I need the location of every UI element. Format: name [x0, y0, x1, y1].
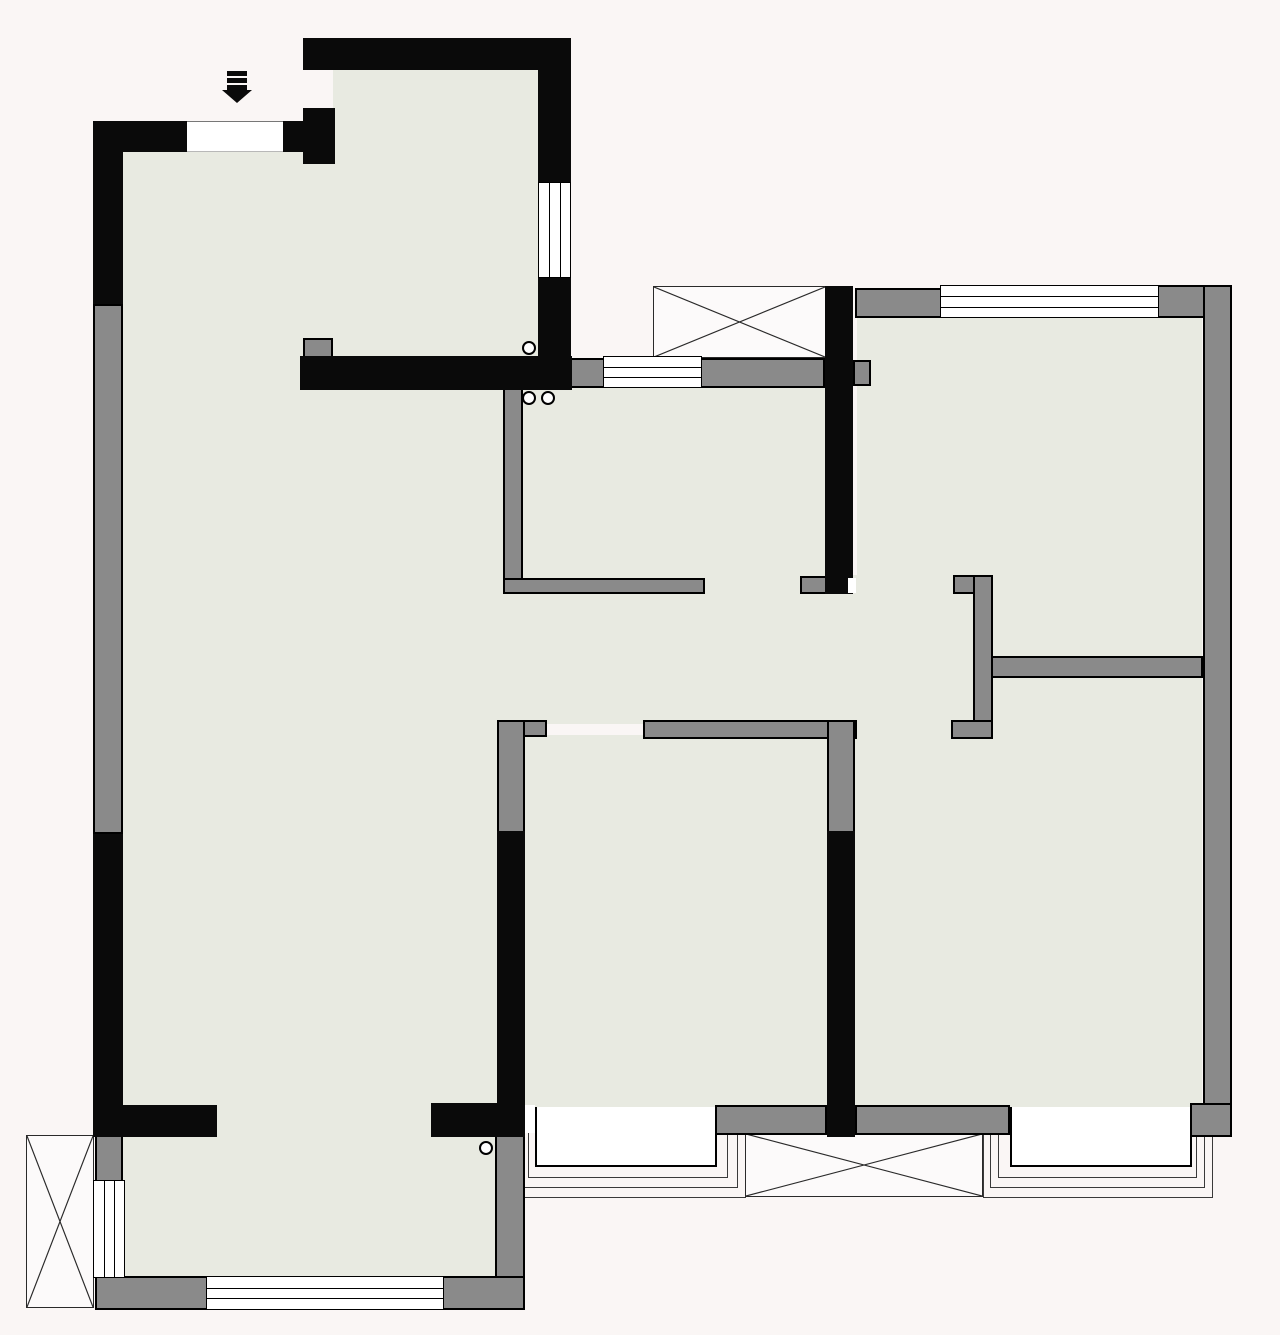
kitchen-top-wall-gray: [700, 358, 825, 388]
sunroom-west-window-pane-line: [114, 1181, 115, 1277]
sunroom-south-window-pane-line: [207, 1288, 443, 1289]
sunroom-floor: [123, 1133, 497, 1280]
room-divider-horizontal: [991, 656, 1203, 678]
sunroom-passage-floor: [215, 1103, 433, 1137]
bedroom-se-bottom-gray: [855, 1105, 1010, 1135]
bedroom-south-west-wall-black: [497, 831, 525, 1107]
entry-hall-east-window-pane-line: [549, 183, 550, 277]
sunroom-south-window: [206, 1276, 444, 1310]
room-divider-vertical-gray: [973, 575, 993, 739]
kitchen-west-wall-gray: [503, 386, 523, 592]
kitchen-window-jamb-left: [568, 358, 605, 388]
entry-hall-top-wall-black: [303, 38, 571, 70]
southeast-corner-gray: [1190, 1103, 1232, 1137]
drain-symbol-kitchen-2: [541, 391, 555, 405]
entry-hall-east-window-pane-line: [560, 183, 561, 277]
bedroom-southeast-floor: [855, 675, 1202, 1107]
flue-shaft-crossbox-top: [653, 286, 826, 358]
ac-platform-crossbox-left: [26, 1135, 94, 1308]
bedroom-south-west-gray: [497, 720, 525, 833]
kitchen-floor: [521, 386, 827, 582]
kitchen-bedroom-divider-black: [825, 286, 853, 594]
door-leaf-slit-south: [525, 1105, 535, 1133]
entry-wall-left-black: [93, 121, 189, 152]
left-wall-lower-black: [93, 834, 123, 1137]
right-outer-wall-gray: [1203, 285, 1232, 1137]
living-room-floor: [123, 150, 510, 1107]
bedroom-south-bottom-gray: [715, 1105, 827, 1135]
drain-symbol-kitchen-1: [522, 391, 536, 405]
kitchen-north-window-pane-line: [604, 367, 701, 368]
ac-platform-crossbox-bottom: [745, 1133, 983, 1197]
bedroom-north-top-wall-gray: [855, 288, 942, 318]
kitchen-door-cap-gray: [800, 576, 827, 594]
sunroom-east-wall-gray: [495, 1133, 525, 1278]
kitchen-north-window-pane-line: [604, 377, 701, 378]
bedroom-north-window: [940, 285, 1159, 318]
bedroom-se-bay-window: [1010, 1105, 1192, 1167]
entry-hall-right-wall-upper: [538, 38, 571, 184]
entrance-door-opening: [187, 121, 283, 152]
sunroom-left-block-gray: [95, 1135, 123, 1182]
floor-plan-canvas: [0, 0, 1280, 1335]
southwest-corner-gray: [95, 1276, 208, 1310]
kitchen-top-wall-black: [300, 356, 572, 390]
bedroom-south-floor: [523, 735, 827, 1107]
south-door-jamb-hook: [951, 720, 993, 739]
entrance-arrow-icon: [222, 90, 252, 103]
drain-symbol-sunroom: [479, 1141, 493, 1155]
entry-hall-east-window: [538, 182, 571, 278]
sunroom-se-corner-gray: [442, 1276, 525, 1310]
entrance-arrow-icon-bar-1: [227, 71, 247, 76]
kitchen-north-window: [603, 356, 702, 388]
bedroom-south-bay-window: [535, 1105, 717, 1167]
kitchen-door-gap-floor: [703, 576, 802, 594]
sunroom-divider-right-black: [431, 1103, 525, 1137]
kitchen-south-wall-gray: [503, 578, 705, 594]
sunroom-divider-left-black: [93, 1105, 217, 1137]
entrance-arrow-icon-bar-2: [227, 78, 247, 83]
bedroom-north-window-pane-line: [941, 296, 1158, 297]
entry-corner-post-black: [303, 108, 335, 164]
drain-symbol-entry-hall: [522, 341, 536, 355]
bedroom-north-floor: [857, 316, 1202, 658]
bedroom-south-east-gray: [827, 720, 855, 833]
se-door-gap-floor: [855, 718, 954, 739]
sunroom-west-window-pane-line: [104, 1181, 105, 1277]
door-leaf-slit-north: [848, 578, 856, 593]
bedroom-north-window-pane-line: [941, 307, 1158, 308]
bedroom-north-wall-nib: [853, 360, 871, 386]
sunroom-west-window: [93, 1180, 125, 1278]
bedroom-south-top-wall: [643, 720, 857, 739]
kitchen-corner-jamb-gray: [303, 338, 333, 358]
sunroom-south-window-pane-line: [207, 1298, 443, 1299]
bedroom-south-east-wall-black: [827, 831, 855, 1137]
left-wall-middle-gray: [93, 304, 123, 834]
